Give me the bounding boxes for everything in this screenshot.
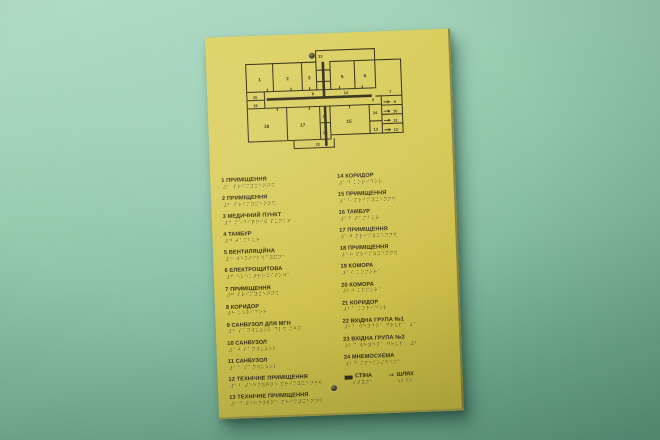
legend-item-braille: ⠼⠓ ⠅⠕⠗⠊⠙⠕⠗ [226, 308, 340, 318]
wall-bar-icon [345, 376, 353, 380]
legend-item-20: 20 КОМОРА⠼⠃⠚ ⠅⠕⠍⠕⠗⠁ [341, 279, 453, 295]
room-label-19: 19 [253, 103, 257, 108]
room-label-22: 22 [316, 142, 320, 147]
room-label-5: 5 [341, 74, 344, 79]
room-label-18: 18 [264, 124, 270, 129]
legend-item-12: 12 ТЕХНІЧНЕ ПРИМІЩЕННЯ⠼⠁⠃ ⠞⠑⠓⠝⠽⠟⠝⠑ ⠏⠗⠊⠍⠽… [229, 374, 343, 390]
tactile-mnemoscheme-sign: 1 2 3 4 5 6 7 8 9 10 11 12 13 14 15 16 1… [205, 29, 464, 420]
room-label-12: 12 [394, 127, 398, 132]
wc-arrows [383, 102, 388, 130]
legend-item-1: 1 ПРИМІЩЕННЯ⠼⠁ ⠏⠗⠊⠍⠽⠭⠑⠝⠝⠫ [221, 175, 335, 191]
room-label-15: 15 [346, 119, 352, 124]
legend-column-left: 1 ПРИМІЩЕННЯ⠼⠁ ⠏⠗⠊⠍⠽⠭⠑⠝⠝⠫2 ПРИМІЩЕННЯ⠼⠃ … [221, 175, 344, 414]
legend-item-braille: ⠼⠃⠃ ⠺⠓⠽⠙⠝⠁ ⠛⠗⠥⠏⠁ ⠼⠁ [343, 322, 455, 332]
legend-item-17: 17 ПРИМІЩЕННЯ⠼⠁⠛ ⠏⠗⠊⠍⠽⠭⠑⠝⠝⠫ [339, 225, 451, 241]
legend-item-11: 11 САНВУЗОЛ⠼⠁⠁ ⠎⠁⠝⠺⠥⠵⠕⠇ [228, 356, 342, 372]
room-label-14: 14 [344, 90, 349, 95]
legend-item-braille: ⠼⠁⠓ ⠏⠗⠊⠍⠽⠭⠑⠝⠝⠫ [340, 250, 452, 260]
room-label-13: 13 [373, 127, 377, 132]
key-wall-braille: ⠎⠞⠽⠝⠁ [345, 380, 374, 386]
legend-item-10: 10 САНВУЗОЛ⠼⠁⠚ ⠎⠁⠝⠺⠥⠵⠕⠇ [227, 338, 341, 354]
room-label-10: 10 [393, 108, 397, 113]
legend-item-19: 19 КОМОРА⠼⠁⠊ ⠅⠕⠍⠕⠗⠁ [341, 261, 453, 277]
arrow-head-10 [388, 109, 391, 112]
room-label-2: 2 [286, 76, 289, 81]
room-label-9: 9 [394, 99, 396, 104]
legend-item-braille: ⠼⠃⠚ ⠅⠕⠍⠕⠗⠁ [341, 286, 453, 296]
key-wall: СТІНА⠎⠞⠽⠝⠁ [345, 374, 374, 387]
legend-column-right: 14 КОРИДОР⠼⠁⠙ ⠅⠕⠗⠊⠙⠕⠗15 ПРИМІЩЕННЯ⠼⠁⠑ ⠏⠗… [337, 171, 457, 387]
path-strip-corridor [267, 94, 372, 100]
legend-item-2: 2 ПРИМІЩЕННЯ⠼⠃ ⠏⠗⠊⠍⠽⠭⠑⠝⠝⠫ [222, 193, 336, 209]
legend-item-24: 24 МНЕМОСХЕМА⠼⠃⠙ ⠍⠝⠑⠍⠕⠎⠓⠑⠍⠁ [344, 352, 456, 368]
room-label-16: 16 [323, 130, 327, 135]
room-label-1: 1 [258, 77, 261, 82]
room-label-6: 6 [364, 73, 367, 78]
legend-item-13: 13 ТЕХНІЧНЕ ПРИМІЩЕННЯ⠼⠁⠉ ⠞⠑⠓⠝⠽⠟⠝⠑ ⠏⠗⠊⠍⠽… [229, 392, 343, 408]
floor-plan: 1 2 3 4 5 6 7 8 9 10 11 12 13 14 15 16 1… [238, 43, 411, 175]
room-label-23: 23 [318, 54, 322, 59]
room-label-20: 20 [253, 95, 257, 100]
legend-item-6: 6 ЕЛЕКТРОЩИТОВА⠼⠋ ⠑⠇⠑⠅⠞⠗⠕⠭⠊⠞⠕⠺⠁ [225, 265, 339, 281]
arrow-head-9 [388, 100, 391, 103]
legend-item-16: 16 ТАМБУР⠼⠁⠋ ⠞⠁⠍⠃⠥⠗ [339, 207, 451, 223]
legend-item-braille: ⠼⠃⠁ ⠅⠕⠗⠊⠙⠕⠗ [342, 304, 454, 314]
legend-item-7: 7 ПРИМІЩЕННЯ⠼⠛ ⠏⠗⠊⠍⠽⠭⠑⠝⠝⠫ [225, 283, 339, 299]
legend-item-14: 14 КОРИДОР⠼⠁⠙ ⠅⠕⠗⠊⠙⠕⠗ [337, 171, 449, 187]
room-label-8: 8 [312, 91, 315, 96]
path-arrow-icon: ➞ [389, 373, 395, 379]
room-label-11: 11 [393, 118, 398, 123]
room-label-21: 21 [322, 113, 327, 118]
legend-item-9: 9 САНВУЗОЛ ДЛЯ МГН⠼⠊ ⠎⠁⠝⠺⠥⠵⠕⠇ ⠙⠇⠫ ⠍⠛⠝ [227, 320, 341, 336]
path-strip-entrance-22 [324, 106, 328, 146]
legend-item-18: 18 ПРИМІЩЕННЯ⠼⠁⠓ ⠏⠗⠊⠍⠽⠭⠑⠝⠝⠫ [340, 243, 452, 259]
room-label-7: 7 [389, 89, 391, 94]
legend-item-braille: ⠼⠛ ⠏⠗⠊⠍⠽⠭⠑⠝⠝⠫ [226, 290, 340, 300]
room-label-24: 24 [373, 110, 378, 115]
legend-item-3: 3 МЕДИЧНИЙ ПУНКТ⠼⠉ ⠍⠑⠙⠊⠟⠝⠊⠯ ⠏⠥⠝⠅⠞ [223, 211, 337, 227]
key-path-braille: ⠱⠇⠫⠓ [389, 379, 414, 385]
arrow-head-12 [389, 128, 392, 131]
wall-background: 1 2 3 4 5 6 7 8 9 10 11 12 13 14 15 16 1… [0, 0, 660, 440]
legend-item-8: 8 КОРИДОР⠼⠓ ⠅⠕⠗⠊⠙⠕⠗ [226, 302, 340, 318]
legend-item-15: 15 ПРИМІЩЕННЯ⠼⠁⠑ ⠏⠗⠊⠍⠽⠭⠑⠝⠝⠫ [338, 189, 450, 205]
legend-item-braille: ⠼⠊ ⠎⠁⠝⠺⠥⠵⠕⠇ ⠙⠇⠫ ⠍⠛⠝ [227, 326, 341, 336]
legend-item-23: 23 ВХІДНА ГРУПА №2⠼⠃⠉ ⠺⠓⠽⠙⠝⠁ ⠛⠗⠥⠏⠁ ⠼⠃ [343, 333, 455, 349]
room-label-17: 17 [300, 123, 306, 128]
legend-item-21: 21 КОРИДОР⠼⠃⠁ ⠅⠕⠗⠊⠙⠕⠗ [342, 297, 454, 313]
legend-item-braille: ⠼⠋ ⠑⠇⠑⠅⠞⠗⠕⠭⠊⠞⠕⠺⠁ [225, 272, 339, 282]
room-label-3: 3 [308, 75, 311, 80]
arrow-head-11 [388, 119, 391, 122]
key-path: ➞ШЛЯХ⠱⠇⠫⠓ [389, 372, 415, 385]
legend-item-braille: ⠼⠁⠊ ⠅⠕⠍⠕⠗⠁ [341, 268, 453, 278]
legend-item-4: 4 ТАМБУР⠼⠙ ⠞⠁⠍⠃⠥⠗ [223, 229, 337, 245]
legend-item-22: 22 ВХІДНА ГРУПА №1⠼⠃⠃ ⠺⠓⠽⠙⠝⠁ ⠛⠗⠥⠏⠁ ⠼⠁ [343, 315, 455, 331]
map-key-row: СТІНА⠎⠞⠽⠝⠁➞ШЛЯХ⠱⠇⠫⠓ [345, 371, 457, 387]
legend-item-5: 5 ВЕНТИЛЯЦІЙНА⠼⠑ ⠺⠑⠝⠞⠊⠇⠫⠉⠽⠯⠝⠁ [224, 247, 338, 263]
